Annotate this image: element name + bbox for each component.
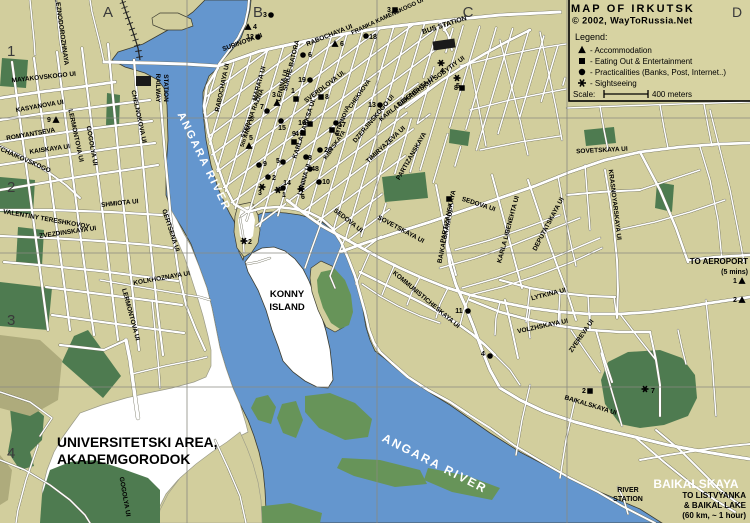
svg-text:8: 8	[454, 85, 458, 92]
svg-text:1: 1	[7, 43, 15, 60]
svg-text:14: 14	[283, 180, 291, 187]
svg-text:BAIKALSKAYA: BAIKALSKAYA	[653, 477, 738, 491]
svg-text:- Accommodation: - Accommodation	[590, 46, 652, 55]
svg-text:7: 7	[651, 388, 655, 395]
svg-text:D: D	[732, 4, 742, 20]
svg-text:7: 7	[448, 204, 452, 211]
svg-text:3: 3	[272, 92, 276, 99]
svg-text:4: 4	[253, 24, 257, 31]
svg-text:19: 19	[298, 77, 306, 84]
svg-text:Scale:: Scale:	[573, 90, 595, 99]
svg-text:8: 8	[308, 155, 312, 162]
svg-text:17: 17	[338, 122, 346, 129]
svg-text:MAP OF IRKUTSK: MAP OF IRKUTSK	[571, 3, 695, 15]
svg-text:(60 km, ~ 1 hour): (60 km, ~ 1 hour)	[682, 511, 746, 520]
svg-text:8: 8	[325, 94, 329, 101]
svg-text:16: 16	[298, 120, 306, 127]
svg-text:13: 13	[368, 102, 376, 109]
svg-text:AKADEMGORODOK: AKADEMGORODOK	[57, 452, 190, 467]
svg-text:2: 2	[733, 297, 737, 304]
svg-text:6: 6	[335, 131, 339, 138]
svg-text:7: 7	[260, 104, 264, 111]
svg-text:(5 mins): (5 mins)	[721, 269, 748, 276]
svg-text:20: 20	[324, 147, 332, 154]
svg-text:3: 3	[387, 7, 391, 14]
svg-text:6: 6	[308, 52, 312, 59]
svg-text:STATION: STATION	[613, 496, 643, 503]
svg-text:TO AEROPORT: TO AEROPORT	[690, 257, 748, 266]
svg-text:18: 18	[369, 34, 377, 41]
svg-text:Legend:: Legend:	[575, 32, 608, 42]
svg-text:STATION: STATION	[162, 74, 169, 102]
svg-text:4: 4	[7, 445, 15, 462]
svg-text:UNIVERSITETSKI AREA,: UNIVERSITETSKI AREA,	[57, 435, 217, 450]
svg-text:2: 2	[7, 179, 15, 196]
svg-text:9: 9	[47, 117, 51, 124]
svg-text:6: 6	[301, 194, 305, 201]
svg-text:- Eating Out & Entertainment: - Eating Out & Entertainment	[590, 57, 693, 66]
svg-text:5: 5	[276, 158, 280, 165]
svg-text:9: 9	[263, 161, 267, 168]
svg-text:4: 4	[440, 68, 444, 75]
svg-text:1: 1	[282, 192, 286, 199]
svg-text:2: 2	[248, 239, 252, 246]
svg-text:© 2002, WayToRussia.Net: © 2002, WayToRussia.Net	[572, 16, 693, 26]
svg-text:9: 9	[292, 131, 296, 138]
svg-text:1: 1	[733, 278, 737, 285]
svg-text:2: 2	[272, 175, 276, 182]
svg-text:400 meters: 400 meters	[652, 90, 692, 99]
svg-text:RIVER: RIVER	[617, 487, 638, 494]
svg-text:& BAIKAL LAKE: & BAIKAL LAKE	[684, 501, 747, 510]
svg-text:1: 1	[291, 88, 295, 95]
svg-text:B: B	[253, 4, 263, 21]
svg-text:3: 3	[258, 190, 262, 197]
svg-text:12: 12	[246, 34, 254, 41]
svg-text:6: 6	[340, 41, 344, 48]
svg-text:- Practicalities (Banks, Post,: - Practicalities (Banks, Post, Internet.…	[590, 68, 726, 77]
svg-text:ISLAND: ISLAND	[269, 302, 305, 313]
svg-text:4: 4	[481, 351, 485, 358]
svg-text:10: 10	[322, 179, 330, 186]
svg-text:- Sightseeing: - Sightseeing	[590, 79, 637, 88]
svg-text:TO LISTVYANKA: TO LISTVYANKA	[682, 491, 746, 500]
svg-text:15: 15	[278, 125, 286, 132]
svg-text:2: 2	[582, 388, 586, 395]
svg-text:3: 3	[263, 12, 267, 19]
svg-text:A: A	[103, 4, 113, 21]
svg-text:3: 3	[7, 312, 15, 329]
svg-text:RAILWAY: RAILWAY	[154, 73, 161, 103]
svg-text:11: 11	[455, 308, 463, 315]
svg-text:KONNY: KONNY	[270, 289, 305, 300]
svg-text:48: 48	[311, 166, 319, 173]
svg-text:5: 5	[249, 135, 253, 142]
